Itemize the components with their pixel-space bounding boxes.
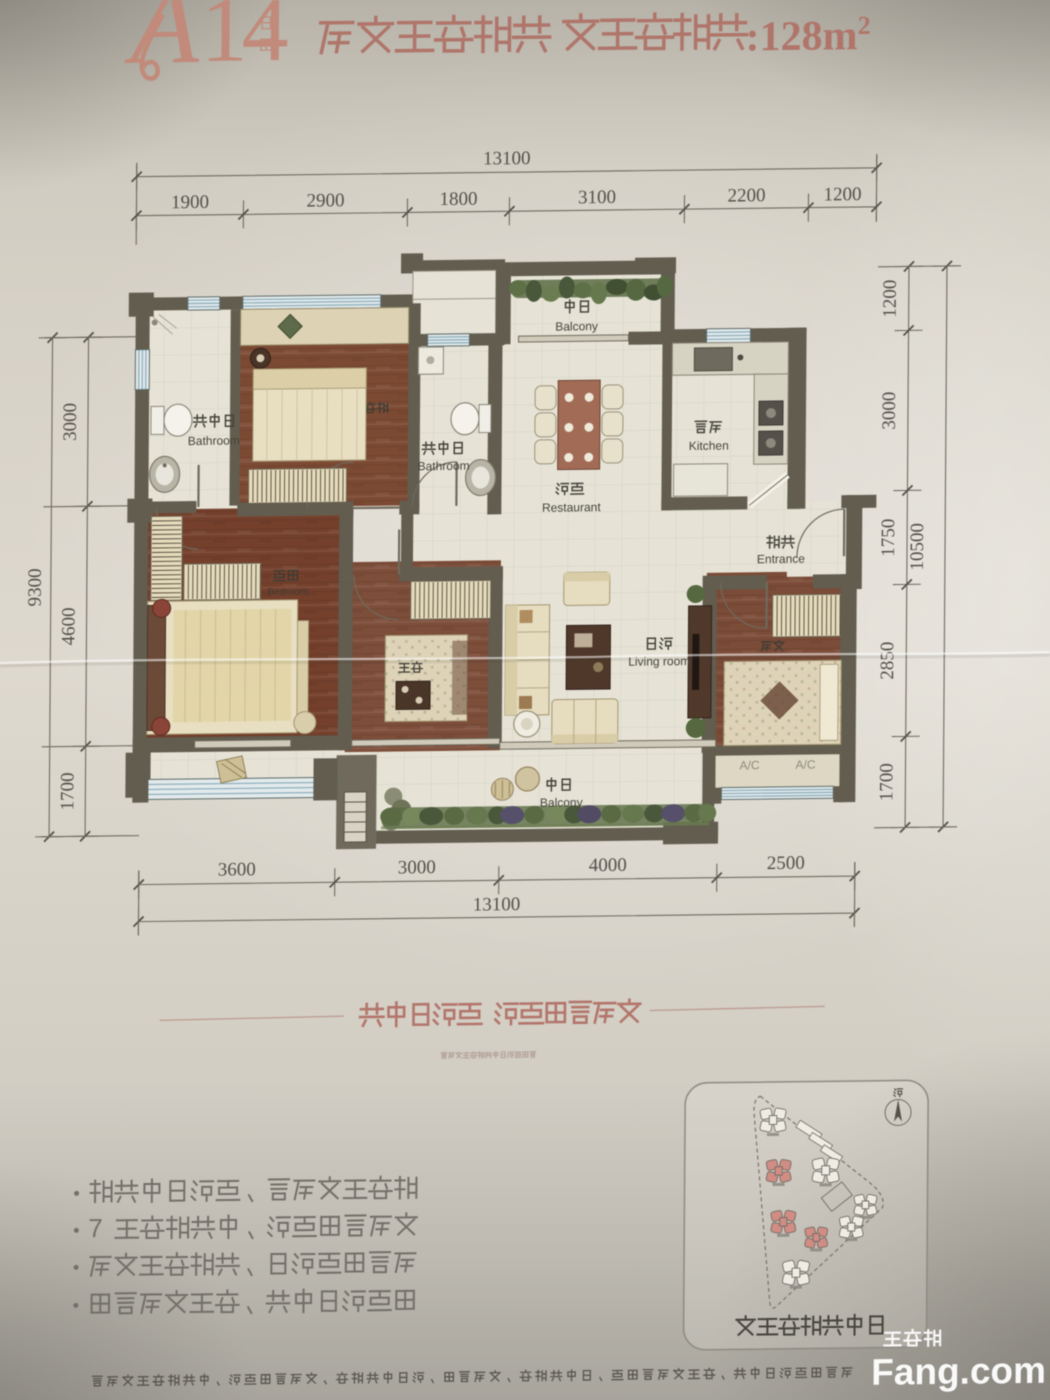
- svg-text:3600: 3600: [218, 859, 256, 880]
- svg-text:Balcony: Balcony: [555, 319, 598, 334]
- svg-text:Bedroom: Bedroom: [267, 587, 308, 598]
- svg-text:Kitchen: Kitchen: [689, 439, 729, 453]
- svg-text:Restaurant: Restaurant: [542, 500, 601, 515]
- svg-text:1750: 1750: [878, 519, 899, 557]
- svg-text:9300: 9300: [25, 568, 46, 606]
- svg-text:1800: 1800: [439, 189, 477, 210]
- svg-text:4600: 4600: [58, 607, 79, 645]
- svg-text:14: 14: [200, 0, 288, 82]
- svg-text:Entrance: Entrance: [757, 552, 805, 567]
- svg-text:7: 7: [88, 1213, 103, 1243]
- svg-text:1700: 1700: [876, 763, 897, 801]
- svg-text:2850: 2850: [877, 642, 898, 680]
- svg-text:A: A: [123, 0, 200, 88]
- svg-text:1900: 1900: [171, 192, 209, 213]
- svg-text:10500: 10500: [907, 523, 928, 571]
- svg-text:Bathroom: Bathroom: [418, 459, 470, 474]
- svg-text:2900: 2900: [306, 190, 344, 211]
- svg-text:3000: 3000: [60, 403, 81, 441]
- svg-text:1200: 1200: [823, 184, 861, 205]
- svg-text:3000: 3000: [398, 857, 436, 878]
- svg-text:Bathroom: Bathroom: [188, 433, 240, 448]
- svg-text:4000: 4000: [589, 855, 627, 876]
- svg-text:1200: 1200: [880, 280, 901, 318]
- svg-text:A/C: A/C: [795, 758, 815, 772]
- svg-text:2500: 2500: [767, 853, 805, 874]
- svg-text::128m2: :128m2: [745, 11, 870, 60]
- svg-text:Balcony: Balcony: [540, 795, 583, 810]
- svg-text:13100: 13100: [473, 894, 521, 916]
- svg-text:Fang.com: Fang.com: [871, 1350, 1046, 1393]
- svg-text:13100: 13100: [483, 148, 531, 170]
- svg-text:1700: 1700: [57, 772, 78, 810]
- svg-text:3100: 3100: [578, 187, 616, 208]
- svg-text:2200: 2200: [727, 185, 765, 206]
- svg-text:A/C: A/C: [739, 758, 759, 772]
- svg-text:3000: 3000: [879, 392, 900, 430]
